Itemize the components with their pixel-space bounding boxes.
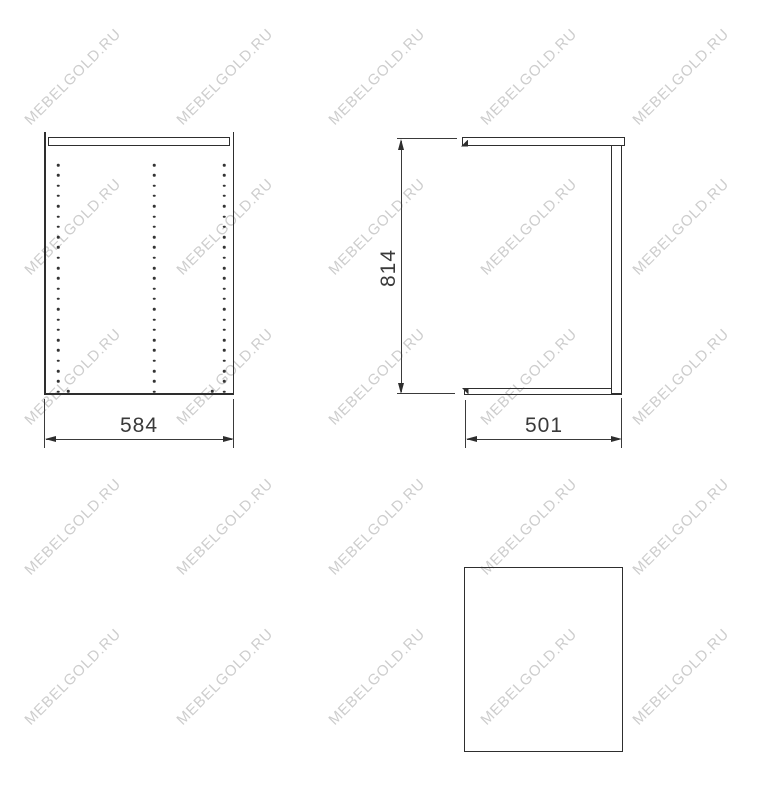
drill-hole-dot (223, 339, 226, 342)
drill-hole-dot (223, 298, 226, 301)
drill-hole-dot (57, 277, 60, 280)
depth-dim-arrow-left (466, 436, 477, 442)
drill-hole-dot (57, 390, 60, 393)
watermark-text: MEBELGOLD.RU (21, 325, 124, 428)
watermark-text: MEBELGOLD.RU (629, 625, 732, 728)
drill-hole-dot (223, 287, 226, 290)
front-view-right-edge-line (233, 132, 235, 395)
watermark-text: MEBELGOLD.RU (477, 475, 580, 578)
drill-hole-dot (153, 370, 156, 373)
drill-hole-dot (223, 236, 226, 239)
drill-hole-dot (211, 390, 214, 393)
drill-hole-dot (57, 359, 60, 362)
watermark-text: MEBELGOLD.RU (325, 25, 428, 128)
watermark-text: MEBELGOLD.RU (629, 175, 732, 278)
drill-hole-dot (223, 308, 226, 311)
drill-hole-dot (153, 277, 156, 280)
drill-hole-dot (153, 256, 156, 259)
drill-hole-dot (153, 339, 156, 342)
height-dim-label: 814 (377, 249, 401, 287)
drill-hole-dot (223, 277, 226, 280)
drill-hole-dot (223, 226, 226, 229)
drill-hole-dot (57, 349, 60, 352)
watermark-text: MEBELGOLD.RU (173, 25, 276, 128)
height-ext-line-top (397, 138, 457, 139)
watermark-text: MEBELGOLD.RU (325, 325, 428, 428)
drill-hole-dot (153, 174, 156, 177)
watermark-text: MEBELGOLD.RU (477, 25, 580, 128)
front-view-bottom-edge-line (44, 393, 234, 395)
drill-hole-dot (153, 205, 156, 208)
drill-hole-dot (223, 380, 226, 383)
drill-hole-dot (57, 380, 60, 383)
drill-hole-dot (57, 246, 60, 249)
width-dim-line (46, 439, 232, 440)
drill-hole-dot (153, 164, 156, 167)
drill-hole-dot (153, 318, 156, 321)
drill-hole-dot (153, 236, 156, 239)
drill-hole-dot (67, 390, 70, 393)
drill-hole-dot (57, 370, 60, 373)
side-view-bottom-panel (464, 388, 612, 395)
watermark-text: MEBELGOLD.RU (325, 475, 428, 578)
drill-hole-dot (223, 195, 226, 198)
watermark-text: MEBELGOLD.RU (21, 175, 124, 278)
width-dim-arrow-right (223, 436, 234, 442)
drill-hole-dot (153, 390, 156, 393)
watermark-text: MEBELGOLD.RU (629, 325, 732, 428)
drill-hole-dot (153, 359, 156, 362)
drill-hole-dot (223, 318, 226, 321)
drill-hole-dot (57, 226, 60, 229)
drill-hole-dot (153, 195, 156, 198)
drill-hole-dot (153, 287, 156, 290)
watermark-text: MEBELGOLD.RU (173, 625, 276, 728)
drill-hole-dot (57, 184, 60, 187)
drill-hole-dot (153, 298, 156, 301)
drill-hole-dot (153, 329, 156, 332)
watermark-text: MEBELGOLD.RU (21, 625, 124, 728)
drill-hole-dot (223, 267, 226, 270)
drill-hole-dot (57, 256, 60, 259)
drill-hole-dot (223, 359, 226, 362)
height-dim-arrow-top (398, 139, 404, 150)
drill-hole-dot (153, 215, 156, 218)
drill-hole-dot (223, 205, 226, 208)
watermark-text: MEBELGOLD.RU (629, 475, 732, 578)
drill-hole-dot (153, 349, 156, 352)
depth-dim-label: 501 (525, 414, 563, 438)
drill-hole-dot (57, 205, 60, 208)
drill-hole-dot (223, 329, 226, 332)
drill-hole-dot (153, 184, 156, 187)
watermark-text: MEBELGOLD.RU (21, 25, 124, 128)
drill-hole-dot (223, 349, 226, 352)
drawing-canvas: MEBELGOLD.RUMEBELGOLD.RUMEBELGOLD.RUMEBE… (0, 0, 780, 800)
side-view-back-edge-bottom-cap (611, 393, 623, 395)
depth-dim-arrow-right (611, 436, 622, 442)
drill-hole-dot (57, 195, 60, 198)
drill-hole-dot (57, 308, 60, 311)
drill-hole-dot (57, 287, 60, 290)
drill-hole-dot (57, 267, 60, 270)
drill-hole-dot (223, 390, 226, 393)
height-dim-arrow-bottom (398, 383, 404, 394)
drill-hole-dot (153, 246, 156, 249)
drill-hole-dot (57, 329, 60, 332)
watermark-text: MEBELGOLD.RU (173, 475, 276, 578)
watermark-text: MEBELGOLD.RU (21, 475, 124, 578)
watermark-text: MEBELGOLD.RU (325, 625, 428, 728)
width-dim-arrow-left (45, 436, 56, 442)
drill-hole-dot (223, 174, 226, 177)
drill-hole-dot (223, 164, 226, 167)
drill-hole-dot (153, 226, 156, 229)
drill-hole-dot (153, 308, 156, 311)
watermark-text: MEBELGOLD.RU (477, 175, 580, 278)
loose-panel-view (464, 567, 623, 752)
side-view-back-edge-inner-line (611, 146, 613, 395)
drill-hole-dot (223, 215, 226, 218)
drill-hole-dot (57, 298, 60, 301)
drill-hole-dot (57, 339, 60, 342)
depth-dim-line (467, 439, 619, 440)
drill-hole-dot (223, 256, 226, 259)
drill-hole-dot (223, 184, 226, 187)
drill-hole-dot (223, 370, 226, 373)
drill-hole-dot (57, 215, 60, 218)
drill-hole-dot (57, 318, 60, 321)
side-view-top-panel (462, 137, 625, 147)
drill-hole-dot (57, 174, 60, 177)
watermark-text: MEBELGOLD.RU (629, 25, 732, 128)
drill-hole-dot (153, 380, 156, 383)
height-ext-line-bottom (397, 393, 455, 394)
drill-hole-dot (57, 236, 60, 239)
drill-hole-dot (57, 164, 60, 167)
side-view-back-edge-outer-line (621, 146, 623, 395)
front-view-top-rail (48, 137, 231, 147)
front-view-left-edge-line (44, 132, 46, 395)
width-dim-label: 584 (120, 414, 158, 438)
drill-hole-dot (153, 267, 156, 270)
drill-hole-dot (223, 246, 226, 249)
